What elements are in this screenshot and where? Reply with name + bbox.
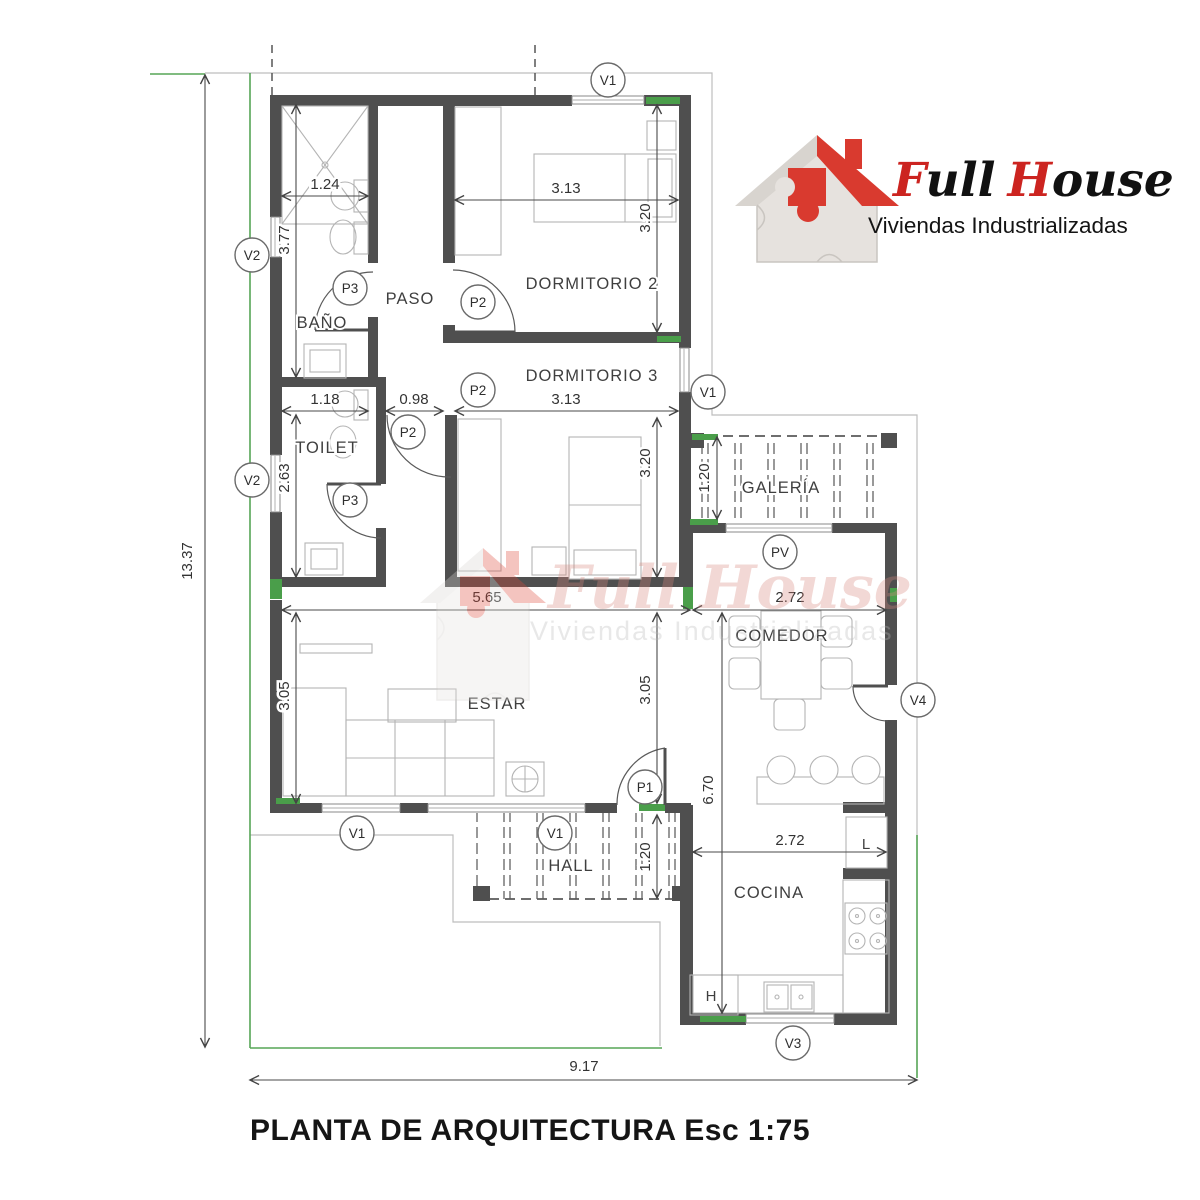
dim-estar-height-right: 3.05 — [637, 675, 654, 704]
room-label-cocina: COCINA — [734, 884, 804, 902]
svg-text:V1: V1 — [349, 826, 366, 841]
watermark-house-icon — [420, 548, 546, 700]
marker-p1-entry: P1 — [628, 770, 662, 804]
svg-text:P1: P1 — [637, 780, 654, 795]
logo-brand-text: FullHouse — [891, 153, 1174, 208]
marker-p3-toilet: P3 — [333, 483, 367, 517]
room-label-paso: PASO — [386, 290, 435, 308]
page-title: PLANTA DE ARQUITECTURA Esc 1:75 — [250, 1114, 810, 1147]
dim-galeria-depth: 1.20 — [696, 463, 713, 492]
svg-text:V1: V1 — [700, 385, 717, 400]
marker-v1-estar: V1 — [340, 816, 374, 850]
svg-text:P3: P3 — [342, 493, 359, 508]
svg-text:P2: P2 — [470, 383, 487, 398]
dim-right-block-height: 6.70 — [700, 775, 717, 804]
svg-text:V1: V1 — [547, 826, 564, 841]
marker-v2-upper: V2 — [235, 238, 269, 272]
logo-tagline: Viviendas Industrializadas — [868, 213, 1128, 238]
svg-text:V2: V2 — [244, 248, 261, 263]
marker-v3: V3 — [776, 1026, 810, 1060]
room-label-bano: BAÑO — [297, 312, 348, 332]
marker-p2-passage: P2 — [391, 415, 425, 449]
svg-text:P2: P2 — [470, 295, 487, 310]
logo: FullHouse Viviendas Industrializadas — [735, 135, 1174, 262]
svg-text:V1: V1 — [600, 73, 617, 88]
dim-dorm3-width: 3.13 — [551, 391, 580, 408]
marker-v2-lower: V2 — [235, 463, 269, 497]
dim-dorm2-width: 3.13 — [551, 180, 580, 197]
watermark: Full House Viviendas Industrializadas — [420, 548, 912, 700]
room-label-laundry: L — [862, 836, 870, 853]
room-label-heater: H — [706, 988, 717, 1005]
dim-bano-height: 3.77 — [276, 225, 293, 254]
door-v4 — [853, 686, 888, 721]
marker-v1-dorm3: V1 — [691, 375, 725, 409]
floor-plan-drawing: 1.24 3.77 3.13 3.20 1.18 0.98 3.13 3.20 … — [0, 0, 1200, 1200]
svg-text:P2: P2 — [400, 425, 417, 440]
svg-text:V4: V4 — [910, 693, 927, 708]
floor-plan-sheet: 1.24 3.77 3.13 3.20 1.18 0.98 3.13 3.20 … — [0, 0, 1200, 1200]
marker-v1-hall: V1 — [538, 816, 572, 850]
marker-v1-top: V1 — [591, 63, 625, 97]
dim-dorm2-height: 3.20 — [637, 203, 654, 232]
marker-p2-dorm3: P2 — [461, 373, 495, 407]
dim-hall-depth: 1.20 — [637, 842, 654, 871]
dim-bano-width: 1.24 — [310, 176, 339, 193]
dim-cocina-width: 2.72 — [775, 832, 804, 849]
dim-dorm3-height: 3.20 — [637, 448, 654, 477]
svg-text:V2: V2 — [244, 473, 261, 488]
svg-text:P3: P3 — [342, 281, 359, 296]
dim-toilet-height: 2.63 — [276, 463, 293, 492]
room-label-galeria: GALERÍA — [742, 478, 821, 497]
watermark-tagline: Viviendas Industrializadas — [530, 616, 894, 646]
dim-total-height: 13.37 — [179, 542, 196, 580]
logo-house-icon — [735, 135, 899, 262]
dim-estar-height-left: 3.05 — [276, 681, 293, 710]
marker-p2-dorm2: P2 — [461, 285, 495, 319]
dim-total-width: 9.17 — [569, 1058, 598, 1075]
room-label-hall: HALL — [548, 857, 593, 875]
marker-p3-bano: P3 — [333, 271, 367, 305]
room-label-toilet: TOILET — [295, 439, 358, 457]
watermark-brand: Full House — [546, 553, 912, 623]
dim-toilet-width: 1.18 — [310, 391, 339, 408]
marker-v4: V4 — [901, 683, 935, 717]
svg-text:V3: V3 — [785, 1036, 802, 1051]
dim-passage-width: 0.98 — [399, 391, 428, 408]
room-label-dormitorio3: DORMITORIO 3 — [526, 367, 659, 385]
room-label-dormitorio2: DORMITORIO 2 — [526, 275, 659, 293]
